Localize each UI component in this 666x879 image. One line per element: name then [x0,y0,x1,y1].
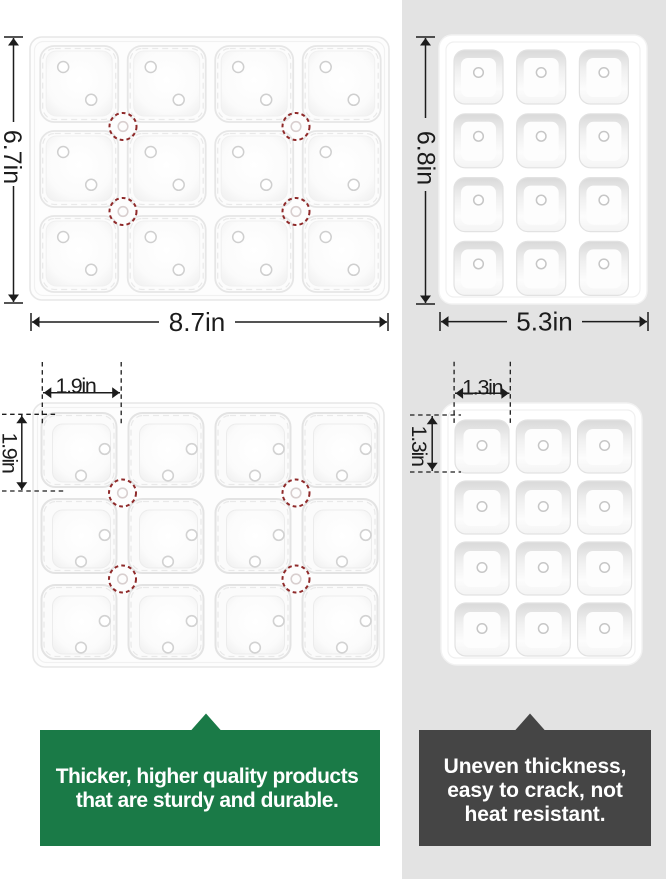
svg-text:Thicker, higher quality produc: Thicker, higher quality products [56,765,359,788]
svg-text:easy to crack, not: easy to crack, not [447,779,623,802]
svg-text:1.3in: 1.3in [407,426,431,466]
svg-text:heat resistant.: heat resistant. [465,803,606,826]
svg-text:that are sturdy and durable.: that are sturdy and durable. [76,789,339,812]
svg-text:6.8in: 6.8in [412,131,440,185]
svg-text:1.9in: 1.9in [55,374,95,398]
svg-text:Uneven thickness,: Uneven thickness, [444,755,627,778]
svg-text:1.3in: 1.3in [462,376,502,400]
svg-text:5.3in: 5.3in [516,307,572,337]
svg-text:6.7in: 6.7in [0,130,26,184]
svg-text:1.9in: 1.9in [0,432,22,472]
svg-text:8.7in: 8.7in [169,307,225,337]
